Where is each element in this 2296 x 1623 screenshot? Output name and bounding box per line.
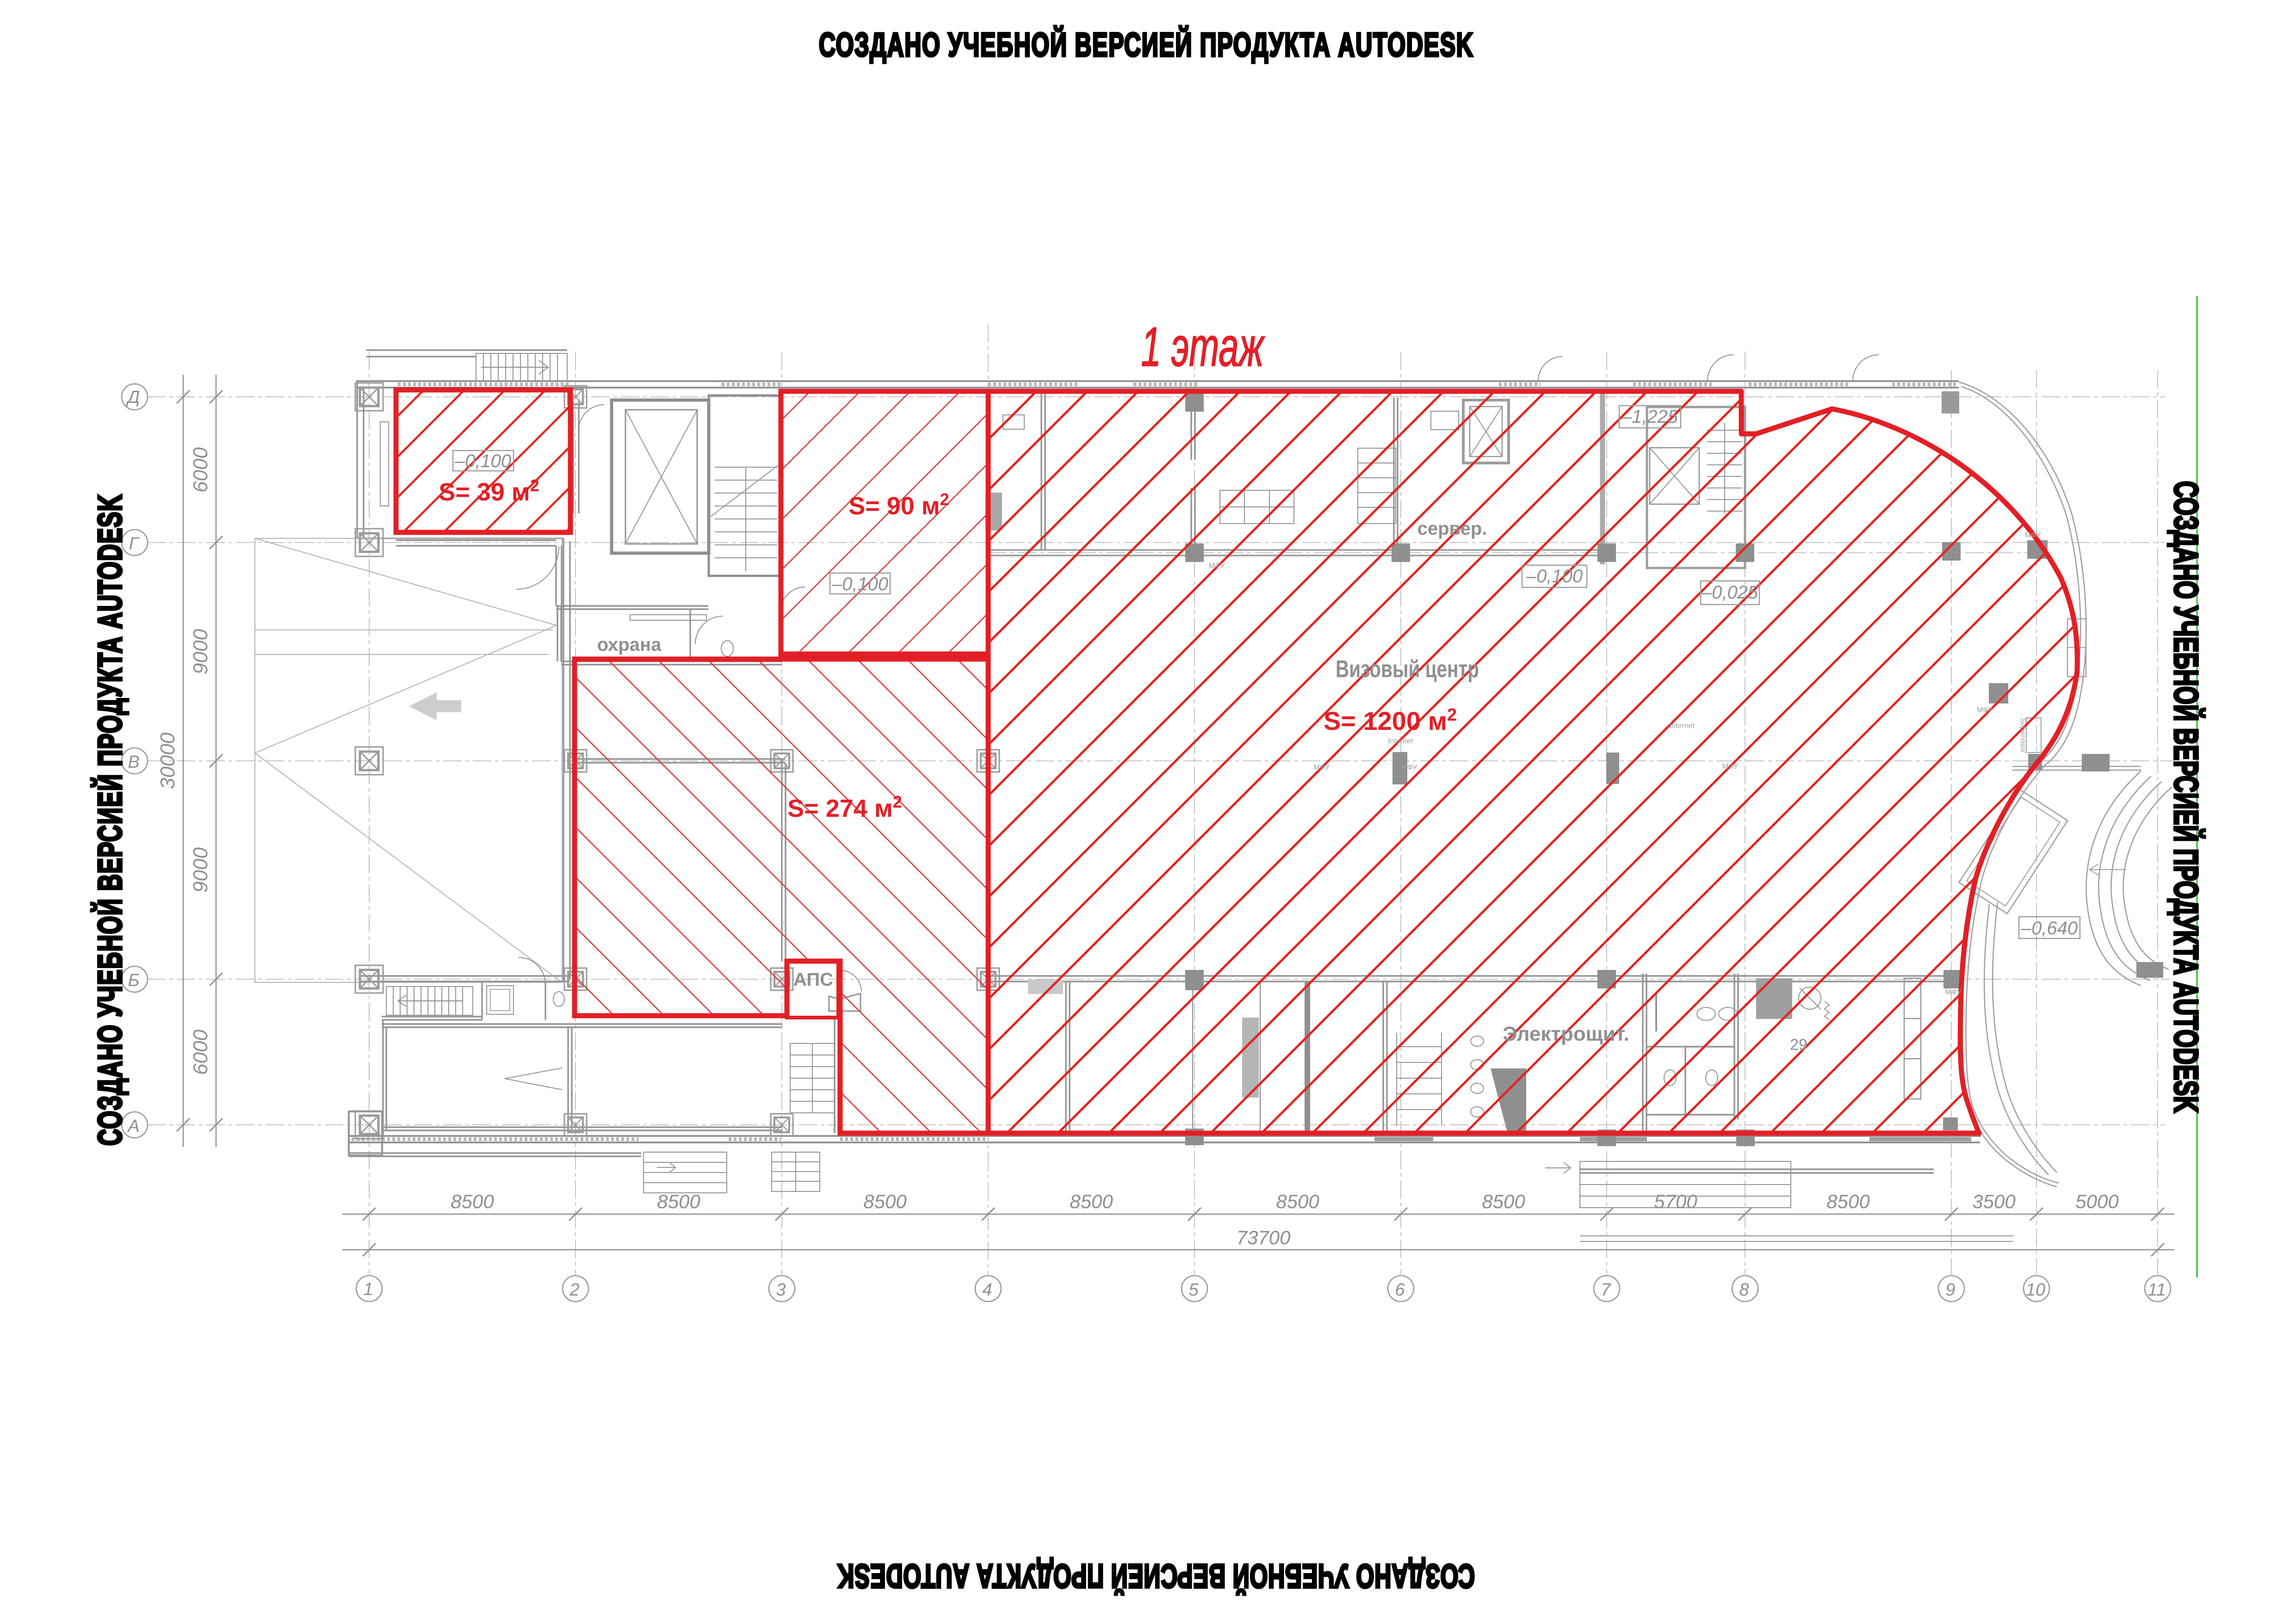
svg-text:S= 39 м2: S= 39 м2 (439, 476, 539, 506)
svg-text:–0,100: –0,100 (831, 574, 888, 594)
svg-text:8500: 8500 (1276, 1191, 1319, 1212)
svg-text:6: 6 (1395, 1280, 1405, 1300)
svg-text:8500: 8500 (657, 1191, 700, 1212)
svg-text:Supervisor: Supervisor (2019, 718, 2027, 753)
svg-text:АПС: АПС (793, 969, 833, 990)
svg-text:МФУ: МФУ (1977, 706, 1993, 714)
svg-text:6000: 6000 (189, 447, 212, 493)
svg-text:Internet: Internet (1670, 722, 1695, 730)
svg-text:–1,225: –1,225 (1621, 407, 1678, 427)
svg-text:5000: 5000 (2075, 1191, 2119, 1212)
svg-text:6000: 6000 (189, 1030, 212, 1075)
svg-text:–0,640: –0,640 (2021, 918, 2078, 938)
svg-text:73700: 73700 (1237, 1227, 1291, 1248)
svg-text:Internet: Internet (1388, 737, 1413, 745)
svg-text:29: 29 (1790, 1036, 1807, 1054)
svg-text:9: 9 (1945, 1280, 1955, 1300)
svg-text:8500: 8500 (451, 1191, 494, 1212)
svg-text:Визовый центр: Визовый центр (1336, 656, 1479, 683)
svg-text:S= 274 м2: S= 274 м2 (787, 792, 902, 822)
svg-text:МФУ: МФУ (1314, 764, 1331, 771)
svg-text:8500: 8500 (1826, 1191, 1870, 1212)
svg-text:В: В (128, 753, 139, 772)
svg-text:1: 1 (363, 1280, 373, 1299)
svg-text:–0,100: –0,100 (454, 451, 511, 471)
svg-text:7: 7 (1601, 1280, 1611, 1300)
svg-text:2: 2 (569, 1280, 579, 1300)
svg-text:S= 1200 м2: S= 1200 м2 (1324, 705, 1457, 735)
svg-text:5700: 5700 (1654, 1191, 1697, 1212)
svg-text:МФУ: МФУ (1722, 763, 1739, 771)
svg-text:8: 8 (1739, 1280, 1749, 1300)
svg-text:1 этаж: 1 этаж (1141, 316, 1265, 378)
svg-text:охрана: охрана (597, 635, 662, 655)
svg-text:3: 3 (776, 1280, 786, 1300)
svg-text:Г: Г (129, 534, 140, 554)
svg-text:МФУ: МФУ (1945, 988, 1962, 996)
svg-text:11: 11 (2147, 1280, 2166, 1300)
svg-text:сервер.: сервер. (1417, 518, 1487, 539)
svg-text:МФУ: МФУ (1401, 764, 1418, 771)
svg-text:8500: 8500 (1070, 1191, 1113, 1212)
svg-text:10: 10 (2026, 1280, 2045, 1300)
svg-text:S= 90 м2: S= 90 м2 (848, 490, 949, 520)
svg-text:30000: 30000 (156, 732, 179, 789)
svg-text:4: 4 (982, 1280, 992, 1300)
svg-text:–0,100: –0,100 (1526, 566, 1583, 586)
svg-text:Электрощит.: Электрощит. (1503, 1023, 1629, 1045)
svg-text:Д: Д (126, 388, 140, 407)
svg-text:–0,025: –0,025 (1701, 582, 1758, 603)
svg-text:5: 5 (1188, 1280, 1199, 1300)
svg-text:МФУ: МФУ (2025, 531, 2042, 539)
svg-text:3500: 3500 (1972, 1191, 2016, 1212)
svg-text:9000: 9000 (189, 629, 212, 674)
svg-text:8500: 8500 (1482, 1191, 1525, 1212)
svg-text:МФУ: МФУ (1209, 562, 1225, 570)
svg-text:9000: 9000 (189, 847, 212, 893)
svg-text:Б: Б (128, 971, 140, 990)
svg-text:8500: 8500 (863, 1191, 907, 1212)
